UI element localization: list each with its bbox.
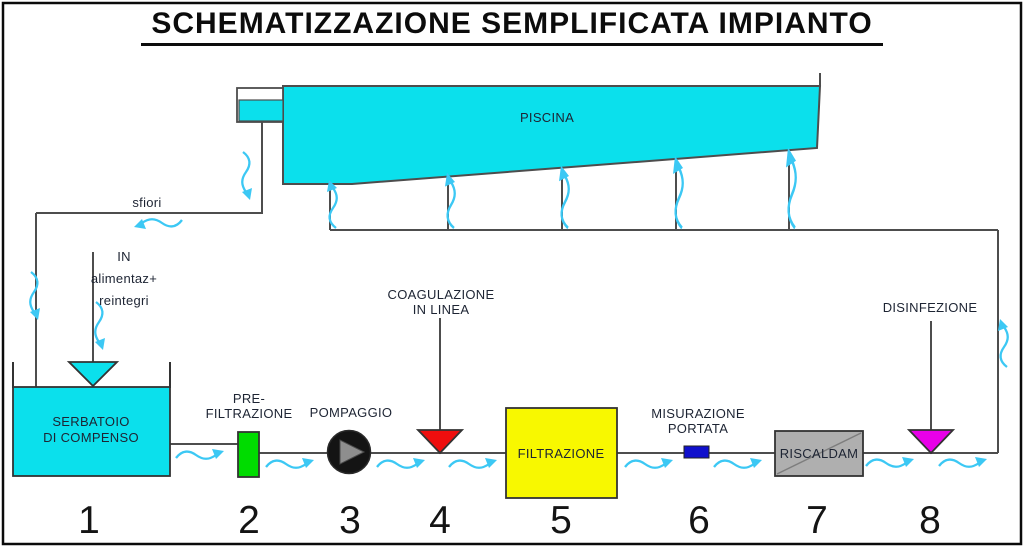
overflow-channel-water [239, 100, 283, 121]
disinfection-label: DISINFEZIONE [883, 300, 978, 315]
disinfection-injector [909, 430, 953, 453]
tank-label-line1: SERBATOIO [52, 414, 129, 429]
feed-label-line2: alimentaz+ [91, 271, 157, 286]
inlet-funnel [69, 362, 117, 386]
flow-arrow-prefilter-pump-icon [266, 458, 314, 468]
flow-arrow-inlet-4-icon [673, 156, 683, 228]
flow-arrow-tank-out-icon [176, 449, 224, 459]
flow-arrow-inlet-3-icon [559, 166, 569, 228]
flow-arrow-coag-filter-icon [449, 458, 497, 468]
plant-schematic: PISCINA sfiori IN alimentaz+ reintegri S… [0, 0, 1024, 547]
flow-arrow-overflow-icon [242, 152, 252, 200]
pool-shape [283, 86, 820, 184]
flow-arrow-heater-disinf-icon [866, 457, 914, 467]
flow-meter [684, 446, 709, 458]
stage-number-4: 4 [429, 499, 451, 542]
title-bar: SCHEMATIZZAZIONE SEMPLIFICATA IMPIANTO [0, 7, 1024, 46]
heater-label: RISCALDAM [780, 446, 859, 461]
pool-label: PISCINA [520, 110, 574, 125]
coagulation-label-line2: IN LINEA [413, 302, 470, 317]
stage-number-6: 6 [688, 499, 710, 542]
flow-arrow-inlet-2-icon [445, 173, 455, 228]
flow-arrow-feed-icon [95, 302, 105, 350]
prefilter-box [238, 432, 259, 477]
coagulation-injector [418, 430, 462, 453]
tank-label-line2: DI COMPENSO [43, 430, 139, 445]
stage-number-7: 7 [806, 499, 828, 542]
flow-meter-label-line2: PORTATA [668, 421, 728, 436]
pump-label: POMPAGGIO [310, 405, 393, 420]
stage-number-2: 2 [238, 499, 260, 542]
flow-arrow-sfiori-icon [134, 219, 182, 229]
flow-arrow-riser-up-icon [998, 319, 1008, 367]
flow-arrow-inlet-5-icon [786, 147, 796, 228]
flow-arrow-filter-meter-icon [625, 458, 673, 468]
stage-number-5: 5 [550, 499, 572, 542]
filter-label: FILTRAZIONE [518, 446, 605, 461]
feed-label-line1: IN [117, 249, 131, 264]
feed-label-line3: reintegri [99, 293, 149, 308]
page-title: SCHEMATIZZAZIONE SEMPLIFICATA IMPIANTO [141, 7, 882, 46]
flow-arrow-inlet-1-icon [327, 180, 337, 228]
flow-arrow-pump-coag-icon [377, 458, 425, 468]
stage-number-3: 3 [339, 499, 361, 542]
diagram-canvas: SCHEMATIZZAZIONE SEMPLIFICATA IMPIANTO [0, 0, 1024, 547]
stage-number-1: 1 [78, 499, 100, 542]
flow-meter-label-line1: MISURAZIONE [651, 406, 745, 421]
stage-number-8: 8 [919, 499, 941, 542]
flow-arrow-meter-heater-icon [714, 458, 762, 468]
prefilter-label-line1: PRE- [233, 391, 265, 406]
coagulation-label-line1: COAGULAZIONE [388, 287, 495, 302]
prefilter-label-line2: FILTRAZIONE [206, 406, 293, 421]
flow-arrow-disinf-riser-icon [939, 457, 987, 467]
sfiori-label: sfiori [132, 195, 161, 210]
